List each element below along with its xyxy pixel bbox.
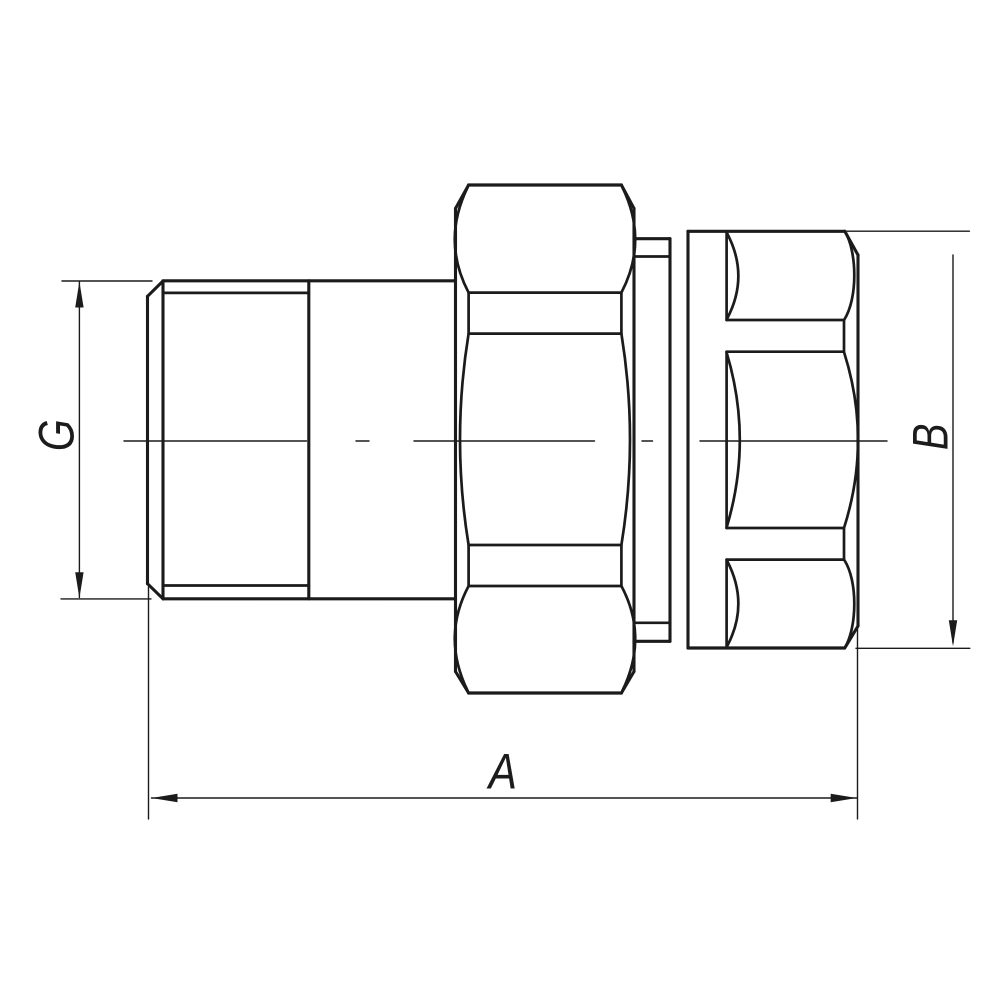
svg-text:G: G xyxy=(29,419,85,451)
svg-text:A: A xyxy=(486,743,517,799)
svg-text:B: B xyxy=(902,423,958,450)
